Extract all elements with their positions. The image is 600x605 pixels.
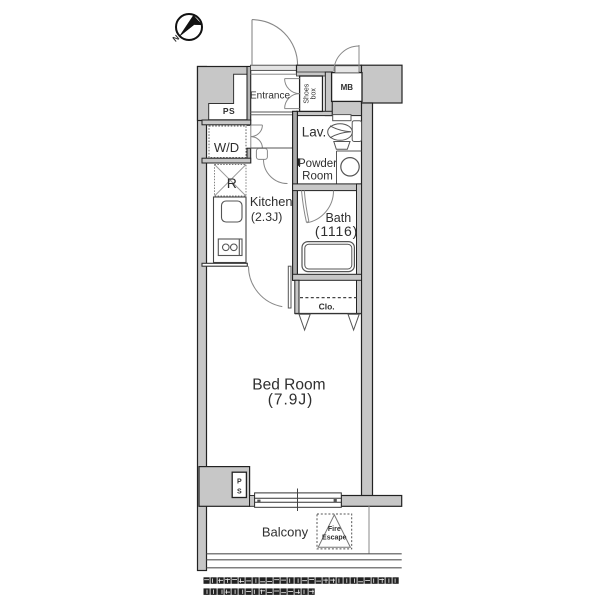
svg-text:W/D: W/D — [214, 140, 239, 155]
svg-text:Fire: Fire — [328, 526, 341, 533]
svg-text:R: R — [227, 175, 237, 191]
svg-text:Entrance: Entrance — [250, 90, 290, 101]
svg-text:Shoes: Shoes — [303, 83, 310, 103]
svg-text:S: S — [237, 489, 242, 496]
svg-text:Powder: Powder — [298, 158, 337, 170]
svg-text:Kitchen: Kitchen — [250, 194, 293, 209]
svg-text:(1116): (1116) — [315, 223, 358, 239]
svg-text:Balcony: Balcony — [262, 524, 309, 539]
svg-text:(2.3J): (2.3J) — [251, 210, 282, 224]
svg-text:P: P — [237, 479, 242, 486]
svg-text:box: box — [310, 88, 317, 100]
svg-text:Clo.: Clo. — [319, 301, 335, 311]
svg-text:Escape: Escape — [322, 534, 347, 541]
svg-text:(7.9J): (7.9J) — [268, 391, 314, 408]
svg-text:Lav.: Lav. — [302, 124, 327, 139]
svg-text:Room: Room — [302, 170, 333, 182]
svg-text:PS: PS — [223, 106, 235, 116]
svg-text:MB: MB — [341, 83, 354, 92]
